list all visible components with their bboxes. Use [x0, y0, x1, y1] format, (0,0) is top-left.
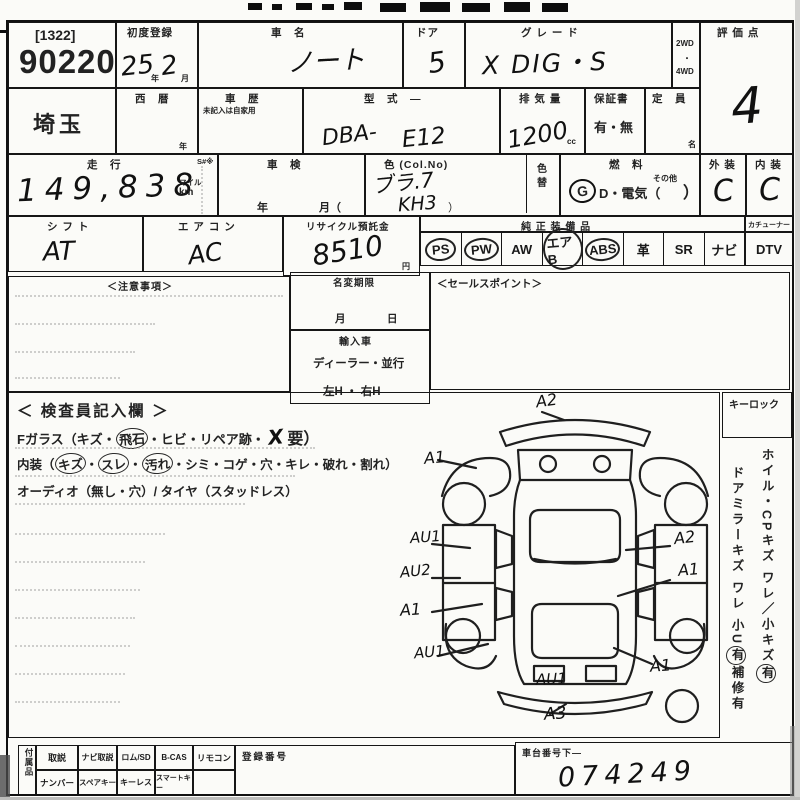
- seireki-box: 西 暦 年: [116, 88, 198, 154]
- color-box: 色 (Col.No) ブラ.7 KH3 ） 色替: [365, 154, 560, 216]
- equip-leather: 革: [623, 233, 664, 265]
- aircon-box: エ ア コ ン AC: [143, 216, 283, 272]
- seireki-label: 西 暦: [135, 91, 170, 106]
- cell-bcas: B-CAS: [155, 745, 193, 770]
- damage-mark: A2: [673, 529, 696, 547]
- equip-abs: ABS: [582, 233, 623, 265]
- sales-point-label: ＜セールスポイント＞: [437, 276, 542, 291]
- irogae-label: 色替: [537, 163, 549, 191]
- import-type: ディーラー・並行: [313, 355, 404, 371]
- shaken-year: 年: [257, 199, 268, 215]
- keylock-box: キーロック: [722, 392, 792, 438]
- cell-remocon: リモコン: [193, 745, 235, 770]
- registration-number-box: 登録番号: [235, 745, 515, 795]
- fuel-other: その他: [653, 173, 677, 184]
- irogae-cell: 色替: [526, 155, 560, 213]
- accessory-group-cell: 付属品: [18, 745, 36, 795]
- teiin-label: 定 員: [652, 91, 687, 106]
- prefecture-box: 埼玉: [8, 88, 116, 154]
- damage-mark: A3: [543, 705, 567, 724]
- aircon-value: AC: [186, 239, 224, 269]
- scan-smudge: [0, 755, 10, 800]
- seireki-year-unit: 年: [179, 141, 187, 152]
- cell-navi-torisetsu: ナビ取説: [78, 745, 117, 770]
- cell-keyless: キーレス: [117, 770, 155, 795]
- km-label: km: [179, 187, 193, 198]
- mileage-box: 走 行 S#※ 149,838 マイル km: [8, 154, 218, 216]
- mei-unit: 名: [688, 139, 696, 150]
- interior-box: 内 装 C: [746, 154, 793, 216]
- first-registration-label: 初度登録: [127, 25, 173, 40]
- registration-number-label: 登録番号: [242, 749, 288, 763]
- katashiki-label: 型 式 —: [364, 91, 422, 106]
- aircon-label: エ ア コ ン: [178, 219, 236, 234]
- drive-dot: ・: [683, 53, 691, 64]
- damage-mark: A1: [677, 561, 699, 579]
- cell-smart-key: スマートキー: [155, 770, 193, 795]
- cell-rom-sd: ロム/SD: [117, 745, 155, 770]
- damage-mark: A1: [423, 449, 445, 467]
- fuel-box: 燃 料 G D・電気（ その他 ）: [560, 154, 700, 216]
- chassis-number-value: 074249: [557, 757, 697, 791]
- katashiki-value: E12: [401, 125, 447, 152]
- notes-box: ＜注意事項＞: [8, 276, 290, 392]
- cell-torisetsu: 取説: [36, 745, 78, 770]
- drive-box: 2WD ・ 4WD: [672, 22, 700, 88]
- equip-navi: ナビ: [704, 233, 745, 265]
- equip-ps: PS: [421, 233, 461, 265]
- equip-aw: AW: [501, 233, 542, 265]
- fuel-gas-circled: G: [568, 178, 597, 204]
- hosho-value: 有・無: [594, 117, 633, 136]
- car-name-label: 車 名: [271, 25, 306, 40]
- meihen-day: 日: [387, 311, 398, 326]
- damage-mark: A1: [649, 657, 671, 674]
- shareki-note: 未記入は自家用: [203, 105, 256, 116]
- damage-mark: AU1: [536, 671, 568, 688]
- interior-label: 内 装: [755, 157, 782, 172]
- equip-sr: SR: [663, 233, 704, 265]
- shareki-label: 車 歴: [225, 91, 260, 106]
- equipment-row: PS PW AW エアB ABS 革 SR ナビ: [420, 232, 745, 266]
- scan-edge: [795, 0, 800, 800]
- color-paren: ）: [448, 199, 459, 215]
- equip-pw: PW: [461, 233, 502, 265]
- side-note-2: ドアミラーキズ ワレ 小U有補修有: [726, 466, 746, 738]
- cell-blank: [193, 770, 235, 795]
- car-name-value: ノート: [286, 47, 365, 77]
- haikiryo-value: 1200: [505, 118, 569, 152]
- shaken-label: 車 検: [267, 157, 302, 172]
- cell-spare-key: スペアキー: [78, 770, 117, 795]
- import-label: 輸入車: [339, 333, 372, 348]
- cell-number: ナンバー: [36, 770, 78, 795]
- grade-box: グ レ ー ド X DIG・S: [465, 22, 672, 88]
- lot-bracket: [1322]: [35, 27, 75, 43]
- shift-box: シ フ ト AT: [8, 216, 143, 272]
- katashiki-box: 型 式 — DBA- E12: [303, 88, 500, 154]
- prefecture: 埼玉: [33, 107, 85, 139]
- score-box: 評 価 点 4: [700, 22, 793, 154]
- circled-kizu: キズ: [54, 452, 86, 475]
- lot-box: [1322] 90220: [8, 22, 116, 88]
- teiin-box: 定 員 名: [645, 88, 700, 154]
- recycle-box: リサイクル預託金 8510 円: [283, 216, 420, 276]
- shaken-month: 月（: [319, 199, 341, 215]
- mileage-value: 149,838: [17, 170, 202, 207]
- equipment-header: 純 正 装 備 品: [420, 216, 745, 232]
- grade-value: X DIG・S: [482, 49, 609, 78]
- circled-ari-2: 有: [726, 646, 746, 666]
- notes-label: ＜注意事項＞: [107, 278, 173, 293]
- drive-2wd: 2WD: [676, 39, 694, 48]
- drive-4wd: 4WD: [676, 67, 694, 76]
- naiso-line: 内装（キズ・スレ・汚れ・シミ・コゲ・穴・キレ・破れ・割れ）: [17, 453, 398, 474]
- first-registration-month: 2: [159, 52, 179, 80]
- door-value: 5: [426, 48, 448, 78]
- year-unit: 年: [151, 73, 159, 84]
- exterior-label: 外 装: [709, 157, 736, 172]
- equip-dtv: DTV: [745, 232, 793, 266]
- first-registration-box: 初度登録 25 年 2 月: [116, 22, 198, 88]
- meihen-box: 名変期限 月 日: [290, 272, 430, 330]
- chassis-number-box: 車台番号下— 074249: [515, 742, 793, 795]
- damage-mark: A1: [399, 601, 421, 618]
- month-unit: 月: [181, 73, 189, 84]
- shareki-box: 車 歴 未記入は自家用: [198, 88, 303, 154]
- score-label: 評 価 点: [717, 25, 759, 40]
- s-mark: S#※: [197, 157, 213, 166]
- meihen-label: 名変期限: [333, 275, 375, 289]
- color-value-2: KH3: [397, 194, 437, 216]
- door-label: ドア: [416, 25, 439, 40]
- audio-tire-line: オーディオ（無し・穴）/ タイヤ（スタッドレス）: [17, 481, 298, 500]
- hosho-box: 保証書 有・無: [585, 88, 645, 154]
- hosho-label: 保証書: [594, 91, 629, 106]
- meihen-month: 月: [335, 311, 346, 326]
- fuel-options: D・電気（: [599, 183, 660, 202]
- hand-x: X: [267, 426, 284, 448]
- sales-point-box: ＜セールスポイント＞: [430, 272, 790, 390]
- fglass-line: Fガラス（キズ・飛石・ヒビ・リペア跡・ X 要）: [17, 425, 319, 449]
- side-note-1: ホイル・CPキズ ワレ／小キズ有: [756, 448, 776, 736]
- fuel-close-paren: ）: [683, 179, 699, 203]
- exterior-grade: C: [711, 176, 735, 208]
- hand-circle-mark: [666, 690, 698, 722]
- shift-label: シ フ ト: [47, 219, 89, 234]
- lot-number: 90220: [19, 43, 116, 81]
- exterior-box: 外 装 C: [700, 154, 746, 216]
- score-value: 4: [729, 80, 764, 132]
- katashiki-prefix: DBA-: [321, 122, 378, 151]
- door-box: ドア 5: [403, 22, 465, 88]
- damage-mark: A2: [535, 392, 558, 411]
- shaken-box: 車 検 年 月（: [218, 154, 365, 216]
- equip-airbag: エアB: [542, 233, 583, 265]
- circled-yogore: 汚れ: [141, 452, 173, 475]
- damage-mark: AU1: [410, 529, 442, 546]
- cc-unit: cc: [567, 137, 576, 146]
- chassis-number-label: 車台番号下—: [522, 746, 582, 759]
- shift-value: AT: [43, 238, 76, 265]
- inspector-title: ＜ 検査員記入欄 ＞: [17, 399, 170, 421]
- yen-unit: 円: [402, 261, 410, 272]
- car-name-box: 車 名 ノート: [198, 22, 403, 88]
- grade-label: グ レ ー ド: [521, 25, 579, 40]
- haikiryo-box: 排 気 量 1200 cc: [500, 88, 585, 154]
- recycle-value: 8510: [310, 232, 385, 271]
- circled-ari-1: 有: [756, 664, 776, 684]
- auction-sheet: [1322] 90220 初度登録 25 年 2 月 車 名 ノート ドア 5 …: [0, 0, 800, 800]
- circled-sure: スレ: [97, 452, 129, 475]
- keylock-label: キーロック: [729, 396, 779, 411]
- fuel-label: 燃 料: [609, 157, 644, 172]
- damage-mark: AU1: [413, 644, 445, 662]
- accessory-group-label: 付属品: [23, 748, 35, 777]
- haikiryo-label: 排 気 量: [519, 91, 561, 106]
- interior-grade: C: [758, 174, 782, 206]
- tuner-label: カチューナー: [748, 220, 790, 230]
- tuner-header: カチューナー: [745, 216, 793, 232]
- damage-mark: AU2: [399, 562, 431, 580]
